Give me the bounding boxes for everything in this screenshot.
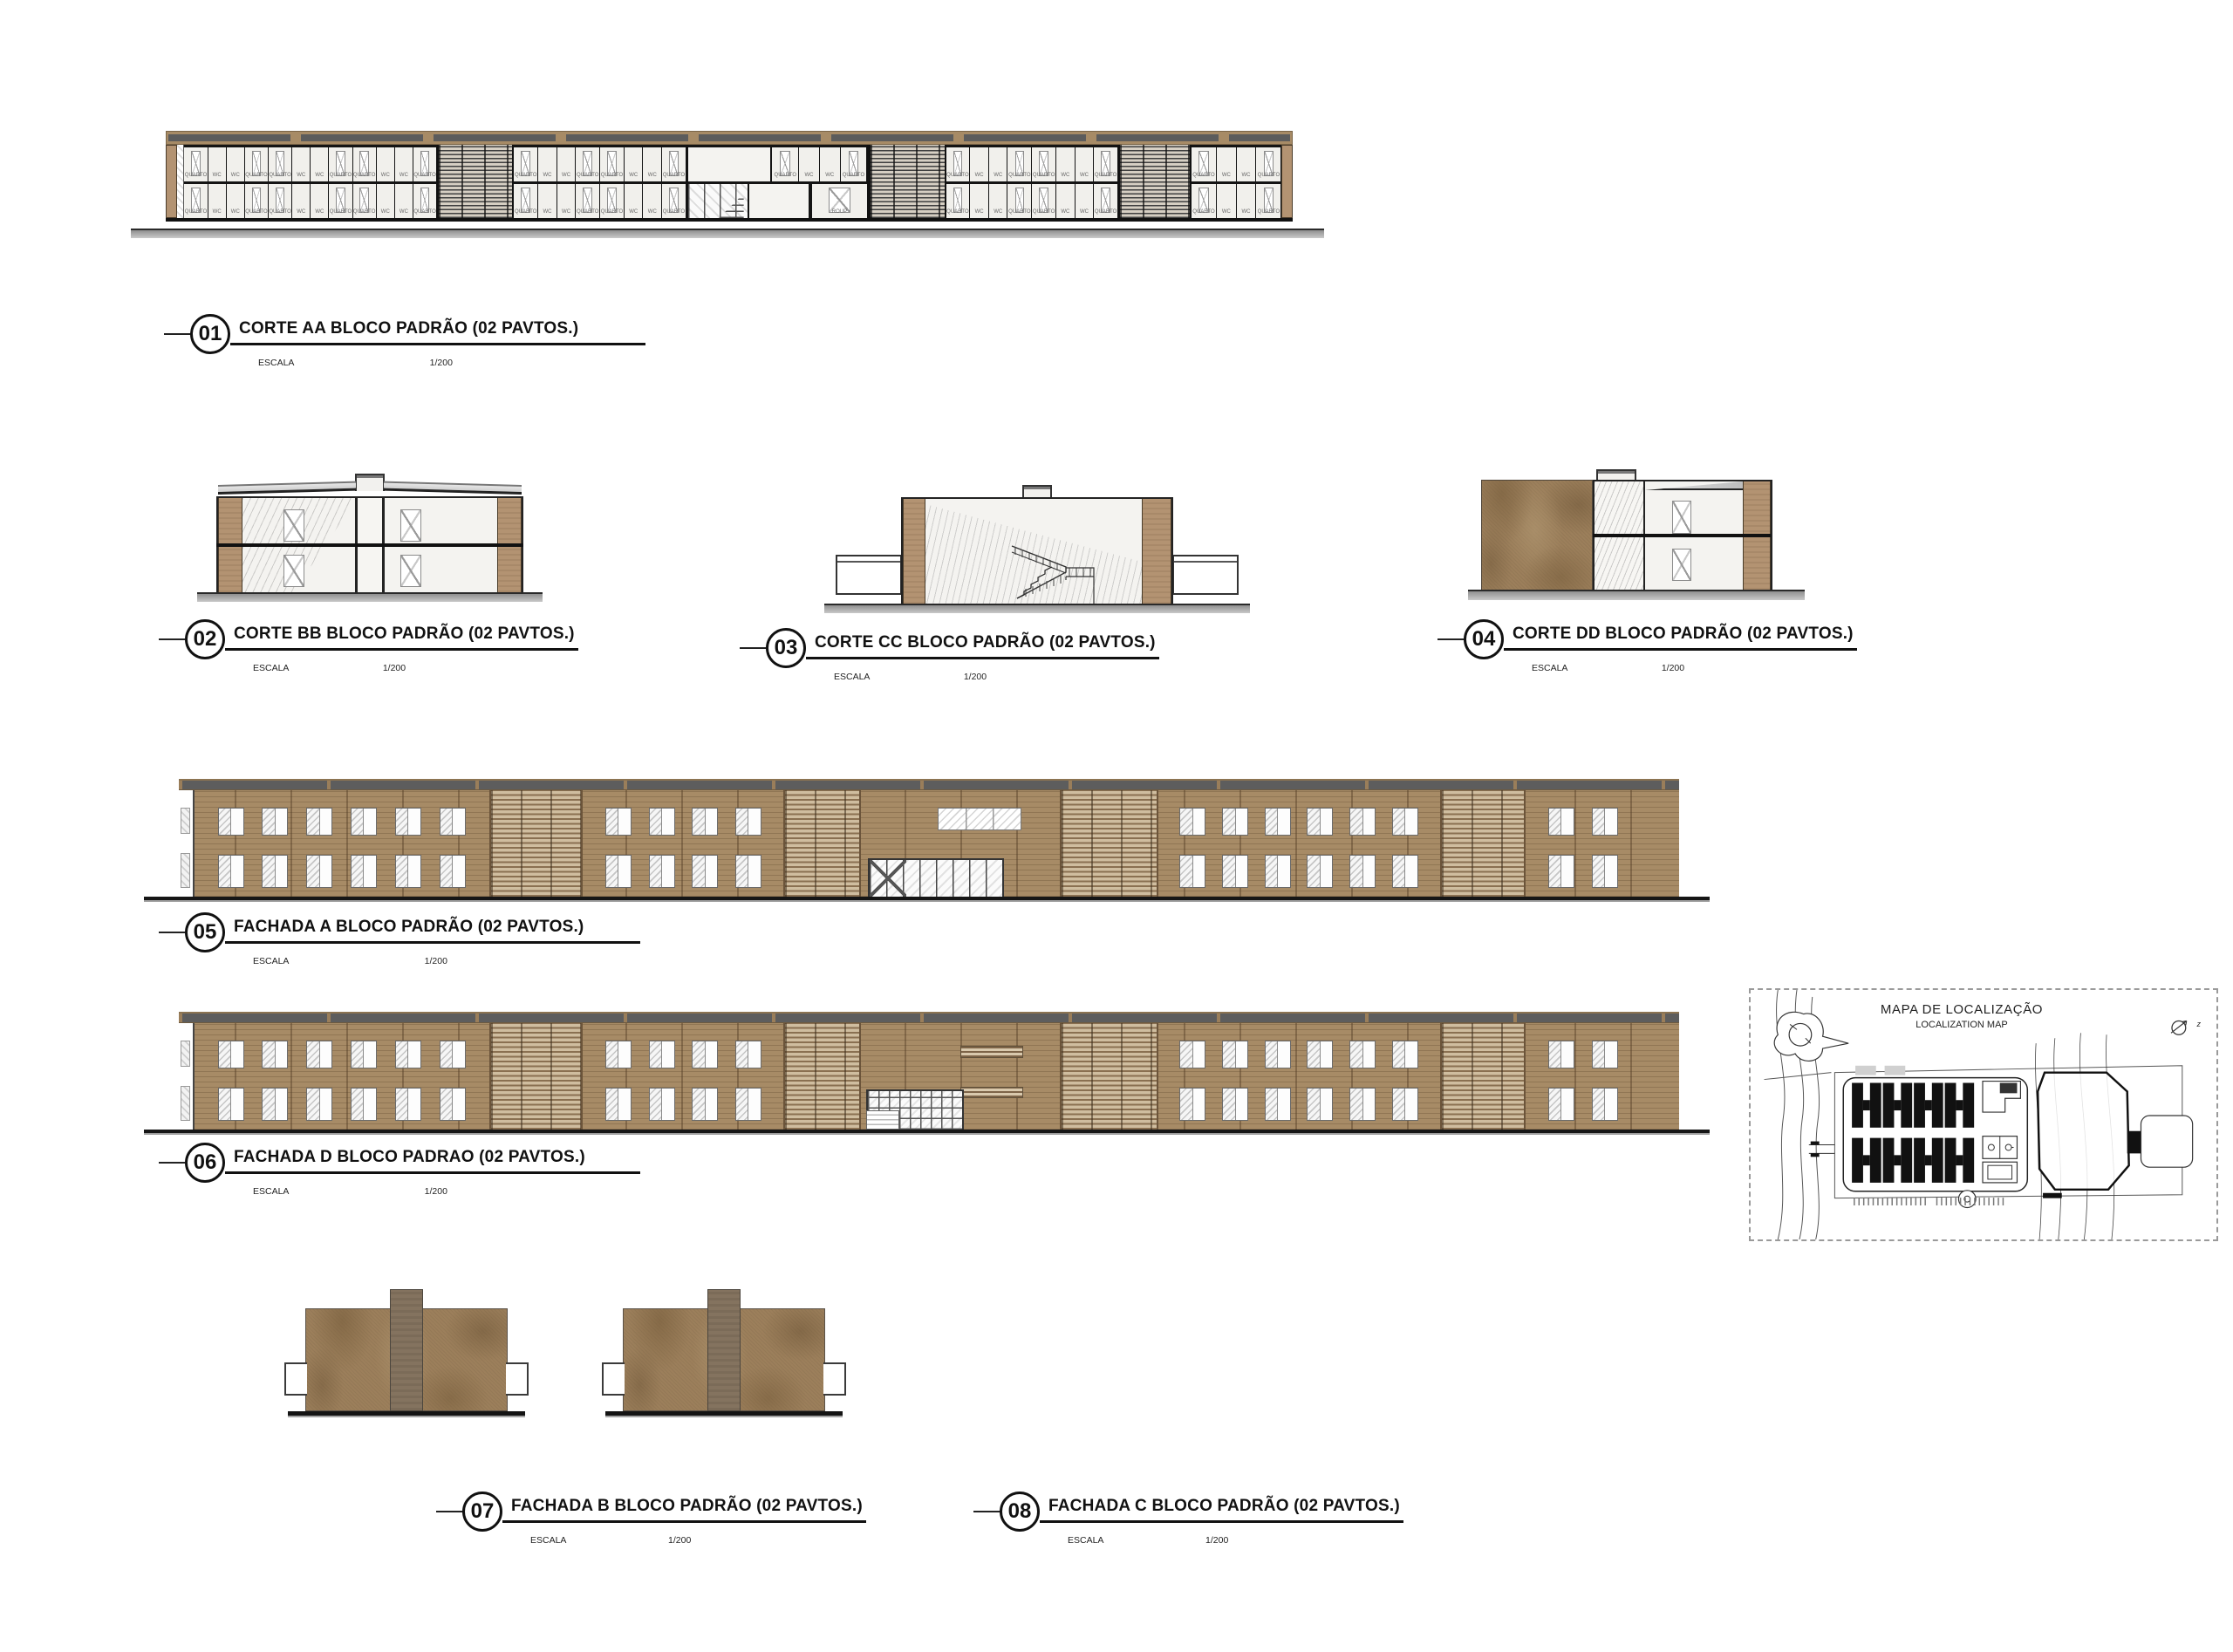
room-cell: WC — [1217, 147, 1237, 181]
room-cell: WC — [292, 147, 311, 181]
window-pane — [736, 1041, 749, 1068]
window-pane — [1350, 856, 1363, 887]
room-cell: QUARTO — [413, 184, 437, 218]
room-cell: QUARTO — [946, 184, 971, 218]
room-cell: WC — [292, 184, 311, 218]
floor: QUARTOWCWCQUARTOQUARTOWCWCQUARTO — [514, 145, 686, 181]
building-block — [2127, 1131, 2141, 1154]
room-cell: QUARTO — [245, 184, 269, 218]
window-pane — [650, 1089, 663, 1120]
room-cell: WC — [643, 147, 662, 181]
room-label: WC — [1061, 173, 1069, 178]
window — [1349, 855, 1376, 888]
window-pane — [1193, 856, 1205, 887]
room-cell: QUARTO — [600, 184, 625, 218]
escala-label: ESCALA — [253, 956, 289, 966]
staircase — [996, 523, 1111, 604]
fachada-d-drawing — [179, 1012, 1679, 1134]
room-label: WC — [543, 209, 551, 215]
window-bay — [195, 790, 489, 897]
room-cell: QUARTO — [1192, 147, 1217, 181]
door-icon — [400, 555, 421, 587]
drawing-number-badge: 02 — [185, 619, 225, 659]
side-railing — [602, 1362, 625, 1396]
floor: QUARTOWCWCQUARTOQUARTOWCWCQUARTO — [946, 145, 1119, 181]
window-row — [1164, 1041, 1435, 1068]
room-cell: WC — [1237, 184, 1257, 218]
section-body — [1593, 480, 1772, 591]
drawing-title: FACHADA C BLOCO PADRÃO (02 PAVTOS.) — [1040, 1492, 1403, 1523]
window-pane — [453, 1041, 465, 1068]
room-label: QUARTO — [515, 209, 536, 215]
room-cell: WC — [227, 184, 245, 218]
slat-window — [960, 1046, 1023, 1058]
window-pane — [1236, 809, 1248, 835]
window-pane — [606, 809, 619, 835]
room-cell: WC — [557, 147, 577, 181]
window-pane — [1266, 1041, 1279, 1068]
window-pane — [1350, 809, 1363, 835]
room-label: QUARTO — [1008, 173, 1030, 178]
floor: ROUP — [688, 181, 867, 218]
louver-panel — [489, 1023, 584, 1130]
window-pane — [364, 1089, 376, 1120]
window-pane — [662, 1089, 674, 1120]
window-pane — [1363, 809, 1376, 835]
window-row — [200, 1088, 484, 1121]
window-pane — [662, 1041, 674, 1068]
window-pane — [1321, 856, 1333, 887]
rooms-wing: QUARTOWCWCQUARTO — [772, 147, 867, 181]
window-pane — [1393, 809, 1406, 835]
window-pane — [440, 856, 454, 887]
door-icon — [283, 509, 304, 542]
window — [649, 808, 675, 836]
window — [1548, 1088, 1574, 1121]
window-pane — [693, 1089, 706, 1120]
room-label: WC — [315, 173, 324, 178]
room-cell: QUARTO — [1007, 184, 1032, 218]
window-pane — [1278, 809, 1290, 835]
corte-aa-body: QUARTOWCWCQUARTOQUARTOWCWCQUARTOQUARTOWC… — [166, 145, 1293, 222]
window — [692, 808, 718, 836]
room-cell: QUARTO — [269, 184, 292, 218]
window — [1265, 1088, 1291, 1121]
louver-panel — [489, 790, 584, 897]
window-pane — [1549, 856, 1562, 887]
window-pane — [408, 856, 420, 887]
room-cell: QUARTO — [1007, 147, 1032, 181]
window-pane — [364, 1041, 376, 1068]
window-pane — [1593, 1089, 1606, 1120]
window-pane — [263, 1041, 276, 1068]
window-pane — [352, 809, 365, 835]
window-pane — [1266, 809, 1279, 835]
window — [1349, 1088, 1376, 1121]
roof-band — [179, 1012, 1679, 1023]
window-bay — [195, 1023, 489, 1130]
window — [1179, 1041, 1205, 1068]
room-label: WC — [381, 209, 390, 215]
window-pane — [352, 856, 365, 887]
louver-panel — [1440, 790, 1526, 897]
room-label: WC — [562, 209, 570, 215]
ground-line — [144, 1130, 1710, 1135]
roof-band — [166, 131, 1293, 145]
window-pane — [1363, 1041, 1376, 1068]
room-label: QUARTO — [413, 209, 435, 215]
end-wall — [166, 145, 177, 218]
door-icon — [283, 555, 304, 587]
room-cell: QUARTO — [1032, 147, 1056, 181]
window-pane — [231, 809, 243, 835]
room-label: WC — [231, 173, 240, 178]
window-pane — [1180, 856, 1193, 887]
window-pane — [1321, 1041, 1333, 1068]
drawing-title: CORTE BB BLOCO PADRÃO (02 PAVTOS.) — [225, 619, 578, 651]
window-pane — [1593, 1041, 1606, 1068]
window — [1592, 855, 1618, 888]
window-bay — [1158, 1023, 1440, 1130]
siding-panel — [1641, 790, 1679, 897]
window-pane — [1321, 809, 1333, 835]
window — [605, 808, 632, 836]
side-wing — [836, 555, 902, 595]
room-label: QUARTO — [946, 209, 968, 215]
room-cell: QUARTO — [772, 147, 799, 181]
sidelight-window — [181, 808, 190, 834]
room-label: WC — [297, 173, 305, 178]
rooms-wing: QUARTOWCWCQUARTOQUARTOWCWCQUARTOQUARTOWC… — [514, 145, 686, 218]
room-cell: QUARTO — [514, 147, 538, 181]
room-cell: QUARTO — [353, 147, 377, 181]
scale-value: 1/200 — [964, 672, 987, 682]
drawing-title: CORTE AA BLOCO PADRÃO (02 PAVTOS.) — [230, 314, 645, 345]
room-cell: WC — [377, 147, 395, 181]
room-label: WC — [648, 209, 657, 215]
window — [218, 855, 244, 888]
sidelight-window — [181, 1041, 190, 1067]
window-pane — [662, 809, 674, 835]
window-pane — [1180, 1041, 1193, 1068]
room-label: QUARTO — [1192, 173, 1214, 178]
room-label: WC — [1222, 209, 1231, 215]
drawing-title: FACHADA A BLOCO PADRÃO (02 PAVTOS.) — [225, 912, 640, 944]
window-pane — [1180, 809, 1193, 835]
scale-value: 1/200 — [425, 956, 447, 966]
drawing-label-04: 04 CORTE DD BLOCO PADRÃO (02 PAVTOS.) ES… — [1464, 619, 1828, 673]
window-pane — [693, 856, 706, 887]
window-pane — [748, 809, 761, 835]
entrance-steps — [866, 1110, 899, 1130]
room-label: QUARTO — [1008, 209, 1030, 215]
fachada-a-body — [179, 790, 1679, 901]
window — [395, 808, 421, 836]
window-pane — [748, 1041, 761, 1068]
window-pane — [440, 1089, 454, 1120]
window — [735, 808, 761, 836]
window-pane — [1266, 856, 1279, 887]
ground-line — [131, 229, 1324, 238]
window-pane — [1549, 1041, 1562, 1068]
window-pane — [1223, 1089, 1236, 1120]
room-cell: QUARTO — [946, 147, 971, 181]
room-label: QUARTO — [353, 209, 375, 215]
room-cell: QUARTO — [245, 147, 269, 181]
room-label: WC — [1222, 173, 1231, 178]
louver-panel — [1060, 790, 1158, 897]
parking-area — [1885, 1066, 1906, 1075]
room-label: QUARTO — [946, 173, 968, 178]
room-cell: QUARTO — [1256, 147, 1281, 181]
window-pane — [1561, 809, 1574, 835]
room-cell: WC — [311, 184, 329, 218]
interior — [1645, 481, 1743, 590]
room-label: WC — [825, 173, 834, 178]
window — [1265, 1041, 1291, 1068]
window-row — [1164, 808, 1435, 836]
window — [306, 1041, 332, 1068]
window — [1548, 808, 1574, 836]
window — [692, 855, 718, 888]
siding-panel — [1035, 1023, 1059, 1130]
window — [1592, 1088, 1618, 1121]
siding-panel — [1035, 790, 1059, 897]
escala-label: ESCALA — [253, 663, 289, 673]
room-label: WC — [648, 173, 657, 178]
window — [262, 855, 288, 888]
window-pane — [1193, 1089, 1205, 1120]
room-cell: WC — [625, 184, 644, 218]
central-hall: QUARTOWCWCQUARTOROUP — [686, 145, 869, 218]
end-column — [179, 790, 195, 897]
room-label: QUARTO — [330, 173, 352, 178]
escala-label: ESCALA — [253, 1186, 289, 1197]
room-cell: WC — [311, 147, 329, 181]
window — [1307, 1088, 1333, 1121]
scale-value: 1/200 — [1662, 663, 1684, 673]
window — [735, 1088, 761, 1121]
reservoir-area — [2038, 1073, 2129, 1190]
window-pane — [1405, 856, 1417, 887]
room-label: QUARTO — [413, 173, 435, 178]
room-label: QUARTO — [330, 209, 352, 215]
room-label: WC — [1061, 209, 1069, 215]
entrance-bay — [861, 1023, 1036, 1130]
window-pane — [219, 1089, 232, 1120]
window — [306, 855, 332, 888]
room-label: WC — [629, 173, 638, 178]
roof-stub — [355, 474, 385, 491]
room-label: QUARTO — [1258, 209, 1280, 215]
room-label: WC — [213, 173, 222, 178]
window-pane — [1223, 1041, 1236, 1068]
escala-label: ESCALA — [530, 1535, 566, 1546]
room-label: ROUP — [832, 209, 847, 215]
room-cell: QUARTO — [600, 147, 625, 181]
entrance-glazing — [868, 858, 1004, 897]
window-pane — [320, 856, 332, 887]
floor-slab — [216, 543, 523, 547]
drawing-label-06: 06 FACHADA D BLOCO PADRAO (02 PAVTOS.) E… — [185, 1143, 640, 1197]
window — [218, 1088, 244, 1121]
room-cell: WC — [208, 147, 227, 181]
room-cell: QUARTO — [184, 184, 208, 218]
entrance-glazing — [688, 184, 749, 218]
room-label: QUARTO — [775, 173, 796, 178]
window-row — [200, 1041, 484, 1068]
floor: QUARTOWCWCQUARTOQUARTOWCWCQUARTO — [514, 181, 686, 218]
window-pane — [453, 1089, 465, 1120]
room-label: WC — [1080, 173, 1089, 178]
room-cell: WC — [1056, 147, 1076, 181]
window — [1349, 808, 1376, 836]
window — [440, 808, 466, 836]
room-cell: WC — [227, 147, 245, 181]
room-label: QUARTO — [185, 209, 207, 215]
window-pane — [606, 856, 619, 887]
window-pane — [693, 1041, 706, 1068]
room-cell: QUARTO — [413, 147, 437, 181]
room-cell: QUARTO — [841, 147, 868, 181]
floor-slab — [1593, 534, 1771, 537]
window-row — [1164, 855, 1435, 888]
window-pane — [736, 856, 749, 887]
room-label: QUARTO — [577, 173, 598, 178]
room-label: QUARTO — [1095, 209, 1116, 215]
floor: QUARTOWCWCQUARTO — [1192, 145, 1282, 181]
room-label: WC — [994, 173, 1002, 178]
window-row — [1531, 855, 1635, 888]
window — [218, 1041, 244, 1068]
room-cell: ROUP — [810, 184, 868, 218]
lower-hall — [749, 184, 810, 218]
window-pane — [307, 1089, 320, 1120]
window-pane — [396, 1041, 409, 1068]
window-pane — [440, 1041, 454, 1068]
window-pane — [1236, 1089, 1248, 1120]
ground-line — [1468, 590, 1805, 600]
window-pane — [320, 809, 332, 835]
window-pane — [706, 1041, 718, 1068]
window — [735, 855, 761, 888]
window-pane — [307, 1041, 320, 1068]
rooms-wing: QUARTOWCWCQUARTOQUARTOWCWCQUARTOQUARTOWC… — [946, 145, 1119, 218]
roof-plane — [1645, 481, 1743, 490]
side-railing — [823, 1362, 846, 1396]
window — [1307, 855, 1333, 888]
window — [605, 855, 632, 888]
window-pane — [618, 1041, 631, 1068]
window — [1392, 855, 1418, 888]
window-pane — [276, 1041, 288, 1068]
room-label: WC — [543, 173, 551, 178]
window — [1307, 808, 1333, 836]
window — [1222, 808, 1248, 836]
site-entrance — [1809, 1142, 1835, 1157]
room-label: QUARTO — [577, 209, 598, 215]
window-pane — [662, 856, 674, 887]
room-cell: QUARTO — [576, 184, 600, 218]
section-body — [216, 496, 523, 594]
window-pane — [1393, 1041, 1406, 1068]
window-bay — [583, 1023, 783, 1130]
drawing-number-badge: 03 — [766, 628, 806, 668]
end-wall — [903, 499, 925, 604]
window-pane — [1363, 1089, 1376, 1120]
room-cell: QUARTO — [662, 184, 686, 218]
window-pane — [1180, 1089, 1193, 1120]
window — [1179, 855, 1205, 888]
room-label: QUARTO — [245, 209, 267, 215]
sidelight-window — [181, 853, 190, 888]
window-pane — [1193, 1041, 1205, 1068]
window — [262, 808, 288, 836]
window-pane — [1266, 1089, 1279, 1120]
louver-panel — [783, 1023, 860, 1130]
window — [306, 808, 332, 836]
fachada-c-drawing — [621, 1289, 827, 1439]
window — [605, 1041, 632, 1068]
window — [649, 1088, 675, 1121]
window-pane — [1278, 1089, 1290, 1120]
window — [605, 1088, 632, 1121]
room-cell: QUARTO — [662, 147, 686, 181]
window-pane — [1405, 1041, 1417, 1068]
room-cell: WC — [538, 184, 557, 218]
room-label: QUARTO — [663, 209, 685, 215]
roof-plane — [218, 481, 356, 495]
room-cell: WC — [208, 184, 227, 218]
window-pane — [1405, 809, 1417, 835]
window — [1392, 1041, 1418, 1068]
window-pane — [320, 1041, 332, 1068]
window — [262, 1088, 288, 1121]
window-pane — [320, 1089, 332, 1120]
window — [1548, 1041, 1574, 1068]
window — [351, 1088, 377, 1121]
window-row — [588, 855, 778, 888]
window — [1222, 1041, 1248, 1068]
window-pane — [263, 856, 276, 887]
window-pane — [1549, 809, 1562, 835]
window-pane — [748, 1089, 761, 1120]
room-cell: WC — [820, 147, 841, 181]
window-pane — [618, 856, 631, 887]
window — [1592, 808, 1618, 836]
louver-panel — [437, 145, 514, 218]
fachada-d-body — [179, 1023, 1679, 1134]
window-pane — [1393, 1089, 1406, 1120]
window-row — [1164, 1088, 1435, 1121]
window-pane — [352, 1041, 365, 1068]
floor: QUARTOWCWCQUARTO — [688, 145, 867, 181]
window — [1222, 855, 1248, 888]
clerestory-window — [938, 808, 1021, 830]
window-pane — [1193, 809, 1205, 835]
window-row — [1531, 1088, 1635, 1121]
fachada-b-drawing — [304, 1289, 509, 1439]
window-pane — [263, 809, 276, 835]
louver-panel — [1060, 1023, 1158, 1130]
drawing-title: CORTE CC BLOCO PADRÃO (02 PAVTOS.) — [806, 628, 1159, 659]
room-label: WC — [975, 209, 984, 215]
corner-column — [177, 145, 185, 218]
room-label: QUARTO — [515, 173, 536, 178]
floor: QUARTOWCWCQUARTOQUARTOWCWCQUARTOQUARTOWC… — [184, 145, 437, 181]
window-pane — [606, 1089, 619, 1120]
end-wall — [1281, 145, 1293, 218]
